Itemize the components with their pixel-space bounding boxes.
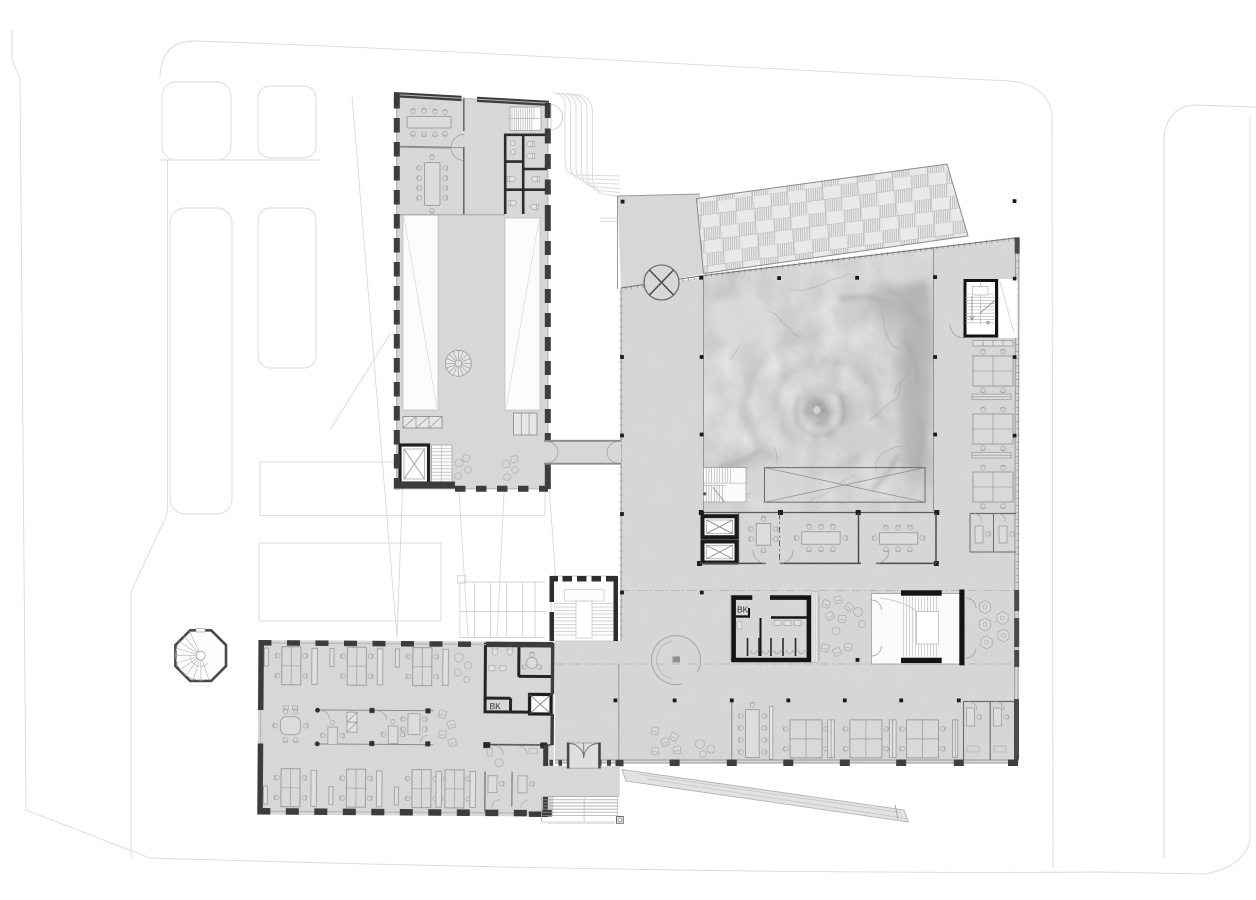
svg-text:BK: BK: [737, 605, 749, 615]
svg-text:BK: BK: [490, 701, 502, 711]
